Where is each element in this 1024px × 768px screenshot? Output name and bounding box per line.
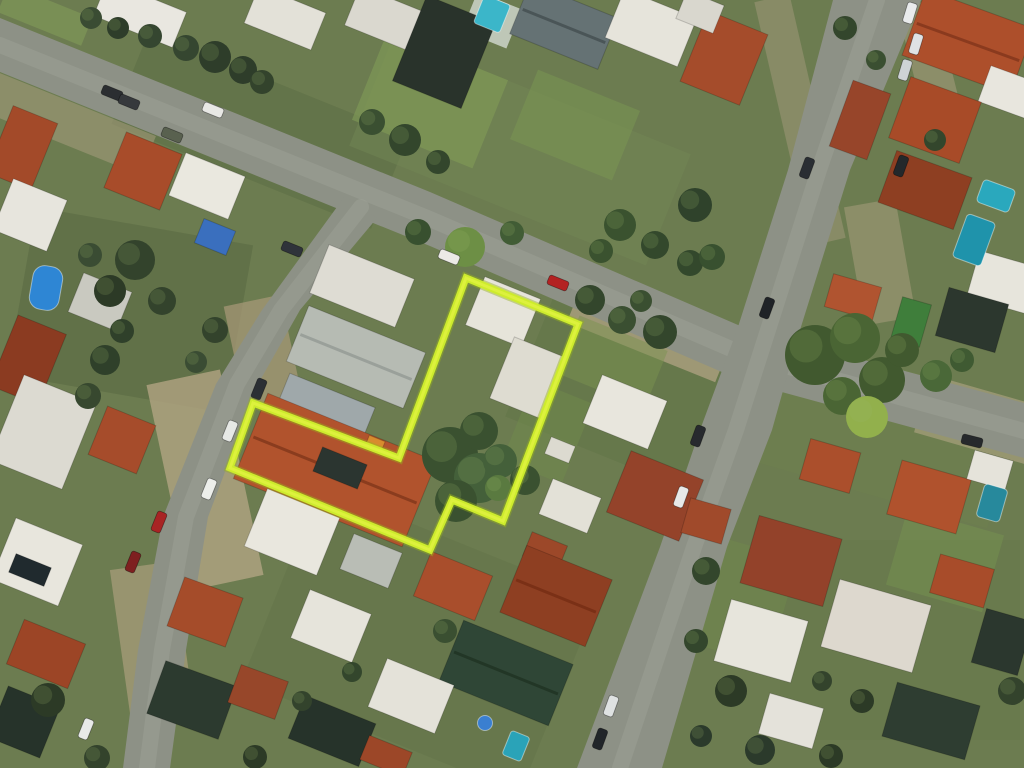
tree-canopy-highlight xyxy=(577,287,594,304)
swimming-pool xyxy=(478,716,493,731)
aerial-scene-canvas xyxy=(0,0,1024,768)
tree-canopy-highlight xyxy=(694,559,709,574)
tree-canopy-highlight xyxy=(826,380,847,401)
tree-canopy-highlight xyxy=(486,447,505,466)
tree-canopy-highlight xyxy=(610,308,625,323)
tree-canopy-highlight xyxy=(407,221,421,235)
tree-canopy-highlight xyxy=(187,353,199,365)
tree-canopy-highlight xyxy=(643,233,658,248)
tree-canopy-highlight xyxy=(204,319,218,333)
tree-canopy-highlight xyxy=(834,317,862,345)
tree-canopy-highlight xyxy=(487,477,501,491)
tree-canopy-highlight xyxy=(426,431,457,462)
tree-canopy-highlight xyxy=(391,126,409,144)
tree-canopy-highlight xyxy=(922,362,940,380)
tree-canopy-highlight xyxy=(835,18,848,31)
tree-canopy-highlight xyxy=(140,26,153,39)
tree-canopy-highlight xyxy=(463,415,484,436)
tree-canopy-highlight xyxy=(862,360,887,385)
tree-canopy-highlight xyxy=(814,673,825,684)
tree-canopy-highlight xyxy=(150,289,165,304)
tree-canopy-highlight xyxy=(231,58,246,73)
tree-canopy-highlight xyxy=(252,72,265,85)
tree-canopy-highlight xyxy=(112,321,125,334)
tree-canopy-highlight xyxy=(926,131,938,143)
tree-canopy-highlight xyxy=(502,223,515,236)
tree-canopy-highlight xyxy=(245,747,258,760)
tree-canopy-highlight xyxy=(681,191,700,210)
tree-canopy-highlight xyxy=(34,686,53,705)
tree-canopy-highlight xyxy=(86,747,100,761)
tree-canopy-highlight xyxy=(747,737,764,754)
tree-canopy-highlight xyxy=(109,19,121,31)
tree-canopy-highlight xyxy=(852,691,865,704)
tree-canopy-highlight xyxy=(632,292,644,304)
tree-canopy-highlight xyxy=(201,43,219,61)
tree-canopy-highlight xyxy=(692,727,704,739)
tree-canopy-highlight xyxy=(361,111,375,125)
tree-canopy-highlight xyxy=(952,350,965,363)
tree-canopy-highlight xyxy=(868,52,879,63)
aerial-satellite-view[interactable] xyxy=(0,0,1024,768)
tree-canopy-highlight xyxy=(458,457,486,485)
tree-canopy-highlight xyxy=(118,243,140,265)
tree-canopy-highlight xyxy=(1000,679,1015,694)
tree-canopy-highlight xyxy=(591,241,604,254)
tree-canopy-highlight xyxy=(790,330,823,363)
tree-canopy-highlight xyxy=(821,746,834,759)
tree-canopy-highlight xyxy=(80,245,93,258)
tree-canopy-highlight xyxy=(82,9,94,21)
tree-canopy-highlight xyxy=(888,336,907,355)
tree-canopy-highlight xyxy=(435,621,448,634)
tree-canopy-highlight xyxy=(428,152,441,165)
tree-canopy-highlight xyxy=(77,385,91,399)
tree-canopy-highlight xyxy=(686,631,699,644)
tree-canopy-highlight xyxy=(679,252,693,266)
tree-canopy-highlight xyxy=(646,318,665,337)
tree-canopy-highlight xyxy=(606,211,624,229)
tree-canopy-highlight xyxy=(849,399,872,422)
tree-canopy-highlight xyxy=(448,230,470,252)
tree-canopy-highlight xyxy=(92,347,109,364)
tree-canopy-highlight xyxy=(701,246,715,260)
tree-canopy-highlight xyxy=(175,37,189,51)
tree-canopy-highlight xyxy=(717,677,735,695)
tree-canopy-highlight xyxy=(96,277,114,295)
tree-canopy-highlight xyxy=(344,664,355,675)
tree-canopy-highlight xyxy=(294,693,305,704)
